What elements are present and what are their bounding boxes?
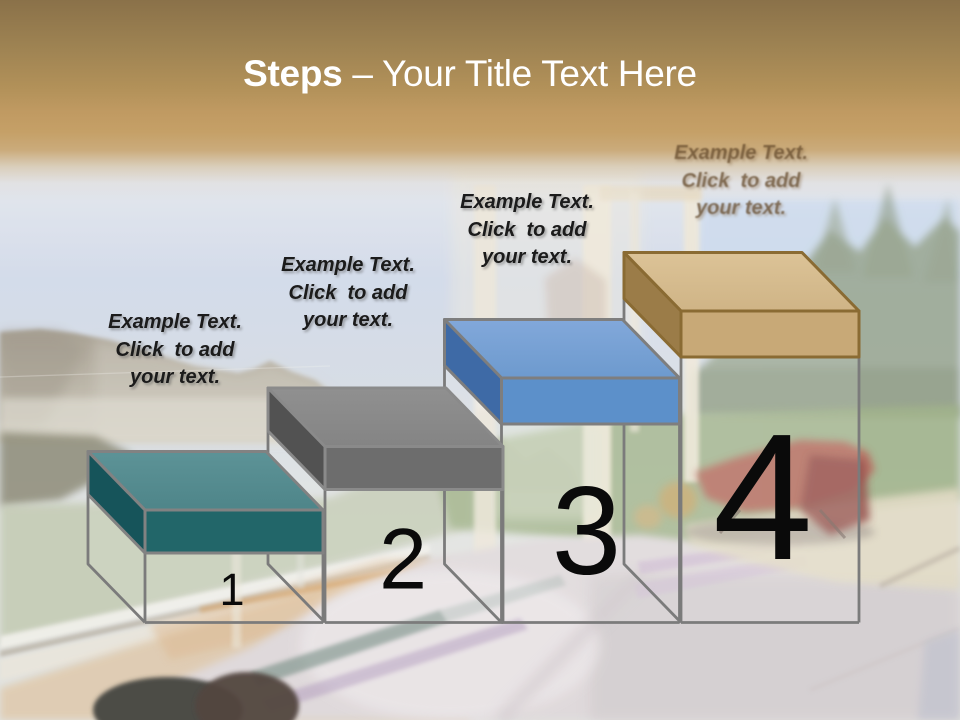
svg-text:4: 4: [713, 397, 813, 598]
svg-text:1: 1: [219, 564, 244, 615]
svg-text:2: 2: [379, 512, 427, 608]
svg-text:3: 3: [552, 462, 622, 601]
